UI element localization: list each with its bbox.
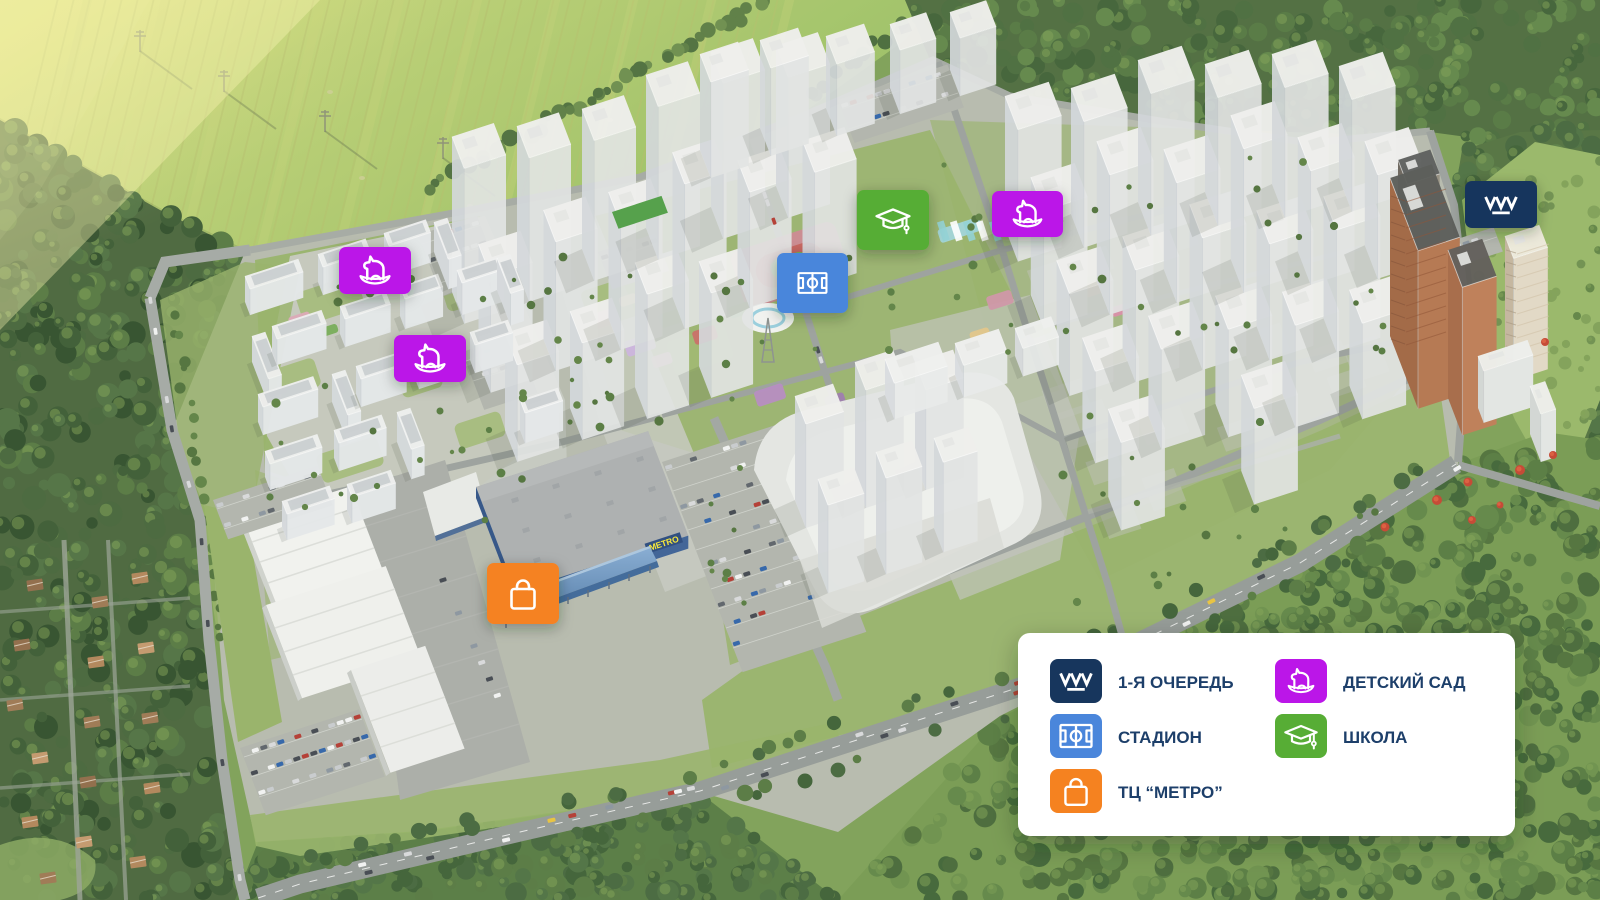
svg-text:1-Я ОЧЕРЕДЬ: 1-Я ОЧЕРЕДЬ <box>1118 673 1234 692</box>
svg-text:ШКОЛА: ШКОЛА <box>1343 728 1407 747</box>
svg-text:ТЦ “МЕТРО”: ТЦ “МЕТРО” <box>1118 783 1223 802</box>
svg-text:ДЕТСКИЙ САД: ДЕТСКИЙ САД <box>1343 673 1466 692</box>
svg-text:СТАДИОН: СТАДИОН <box>1118 728 1202 747</box>
